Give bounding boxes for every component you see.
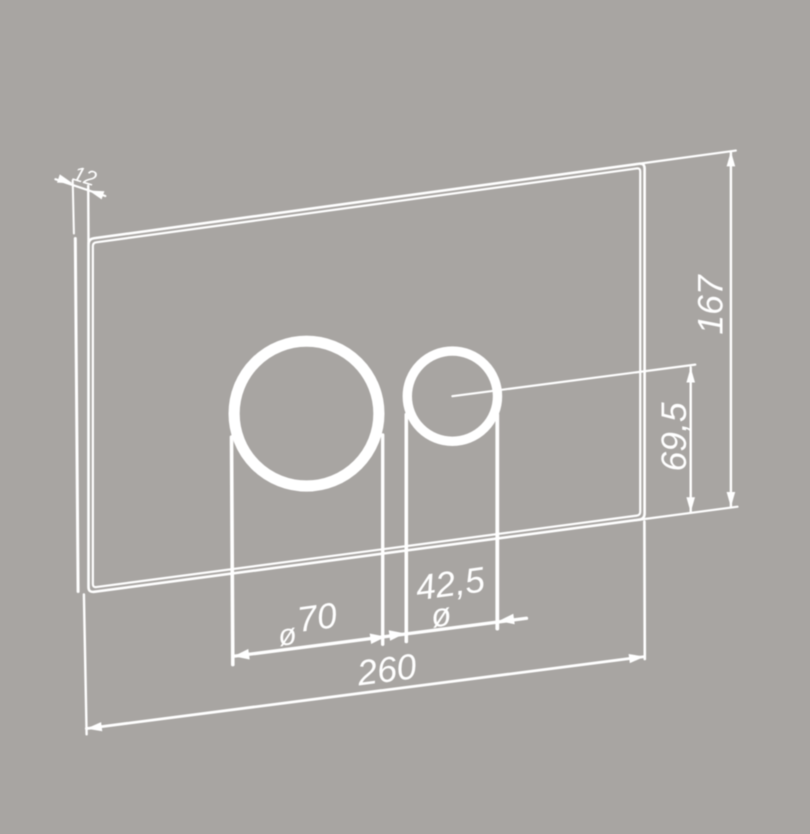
svg-text:70: 70 <box>295 595 340 640</box>
svg-text:260: 260 <box>354 646 419 694</box>
svg-text:167: 167 <box>690 274 730 334</box>
svg-text:69,5: 69,5 <box>654 402 694 471</box>
